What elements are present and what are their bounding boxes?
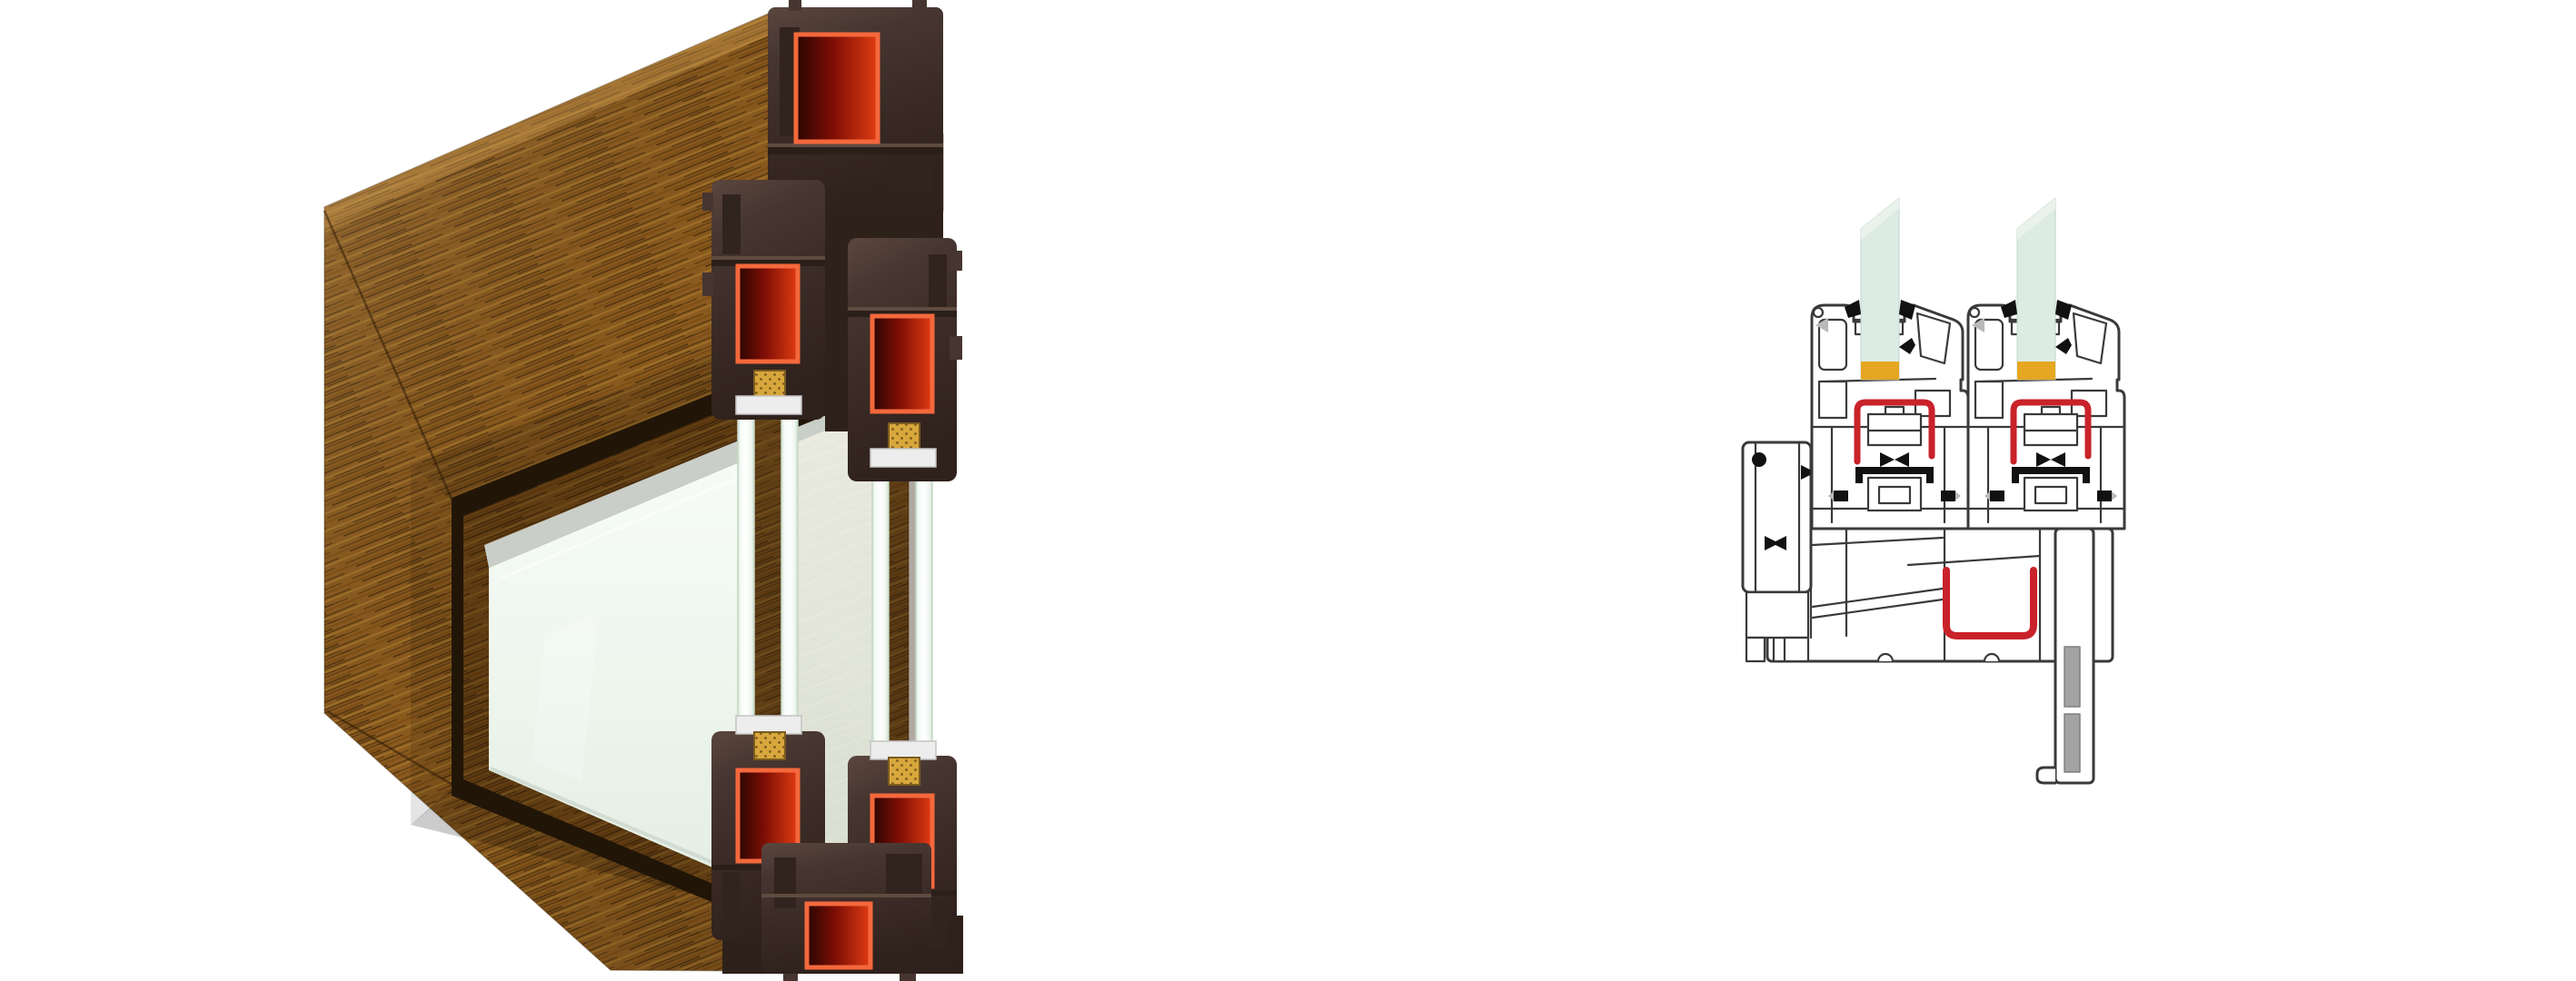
- sill-notch-b: [1984, 654, 1999, 661]
- illustration-canvas: [0, 0, 2576, 981]
- top-sash-left-chamber: [722, 194, 741, 254]
- bottom-sash-right-gold-spacer: [889, 758, 920, 785]
- chamfer-left: [411, 465, 452, 825]
- top-sash-left-steel-pocket: [738, 266, 798, 362]
- bottom-frame-profile-section: [761, 843, 931, 981]
- bottom-frame-chamber-b: [886, 854, 922, 894]
- glazing-packer: [1861, 362, 1899, 380]
- top-sash-right-steel-pocket: [872, 316, 932, 411]
- addon-body: [1743, 442, 1811, 592]
- bottom-frame-ridge: [761, 894, 931, 897]
- top-sash-left-gold-spacer: [754, 371, 785, 398]
- top-frame-divider: [768, 147, 943, 154]
- top-frame-steel-pocket: [796, 35, 878, 142]
- bottom-frame-chamber-a: [774, 857, 796, 908]
- top-frame-hook-a: [789, 0, 801, 11]
- top-sash-right-hook-b: [950, 336, 962, 360]
- addon-round-gasket: [1752, 452, 1766, 467]
- window-section-drawing: [1743, 198, 2124, 783]
- top-sash-profile-right: [848, 238, 962, 481]
- top-sash-right-gold-spacer: [889, 423, 920, 451]
- window-corner-render: [324, 0, 963, 981]
- top-sash-left-ridge: [711, 256, 825, 260]
- top-frame-ridge: [768, 144, 943, 147]
- top-frame-profile-section: [768, 0, 943, 211]
- top-sash-right-hook-a: [950, 251, 962, 271]
- top-sash-right-white-spacer: [870, 449, 936, 467]
- sill-notch-a: [1878, 654, 1893, 661]
- bottom-sash-left-gold-spacer: [754, 732, 785, 759]
- top-frame-chamber-b: [889, 153, 932, 191]
- sash-assembly-left: [1812, 198, 1968, 529]
- addon-foot-a: [1746, 638, 1765, 661]
- addon-lower-chamber: [1746, 592, 1808, 638]
- drip-leg-gray-infill-b: [2064, 714, 2080, 772]
- bottom-frame-foot-b: [900, 974, 916, 981]
- top-sash-left-hook-b: [702, 272, 713, 296]
- top-sash-right-chamber: [929, 254, 947, 311]
- drip-leg-foot: [2037, 768, 2055, 783]
- drip-leg-gray-infill-a: [2064, 647, 2080, 707]
- addon-foot-b: [1785, 638, 1808, 661]
- illustration-svg: [0, 0, 2576, 981]
- top-sash-right-ridge: [848, 307, 957, 311]
- top-sash-left-white-spacer: [736, 396, 801, 414]
- addon-profile: [1743, 442, 1815, 661]
- bottom-sash-left-chamber: [722, 872, 741, 926]
- top-sash-left-hook-a: [702, 193, 713, 211]
- bottom-frame-steel-pocket: [807, 904, 870, 967]
- sash-assembly-right: [1968, 198, 2124, 529]
- bottom-frame-foot-a: [783, 974, 798, 981]
- top-frame-hook-b: [912, 0, 927, 11]
- top-sash-profile-left: [702, 180, 825, 420]
